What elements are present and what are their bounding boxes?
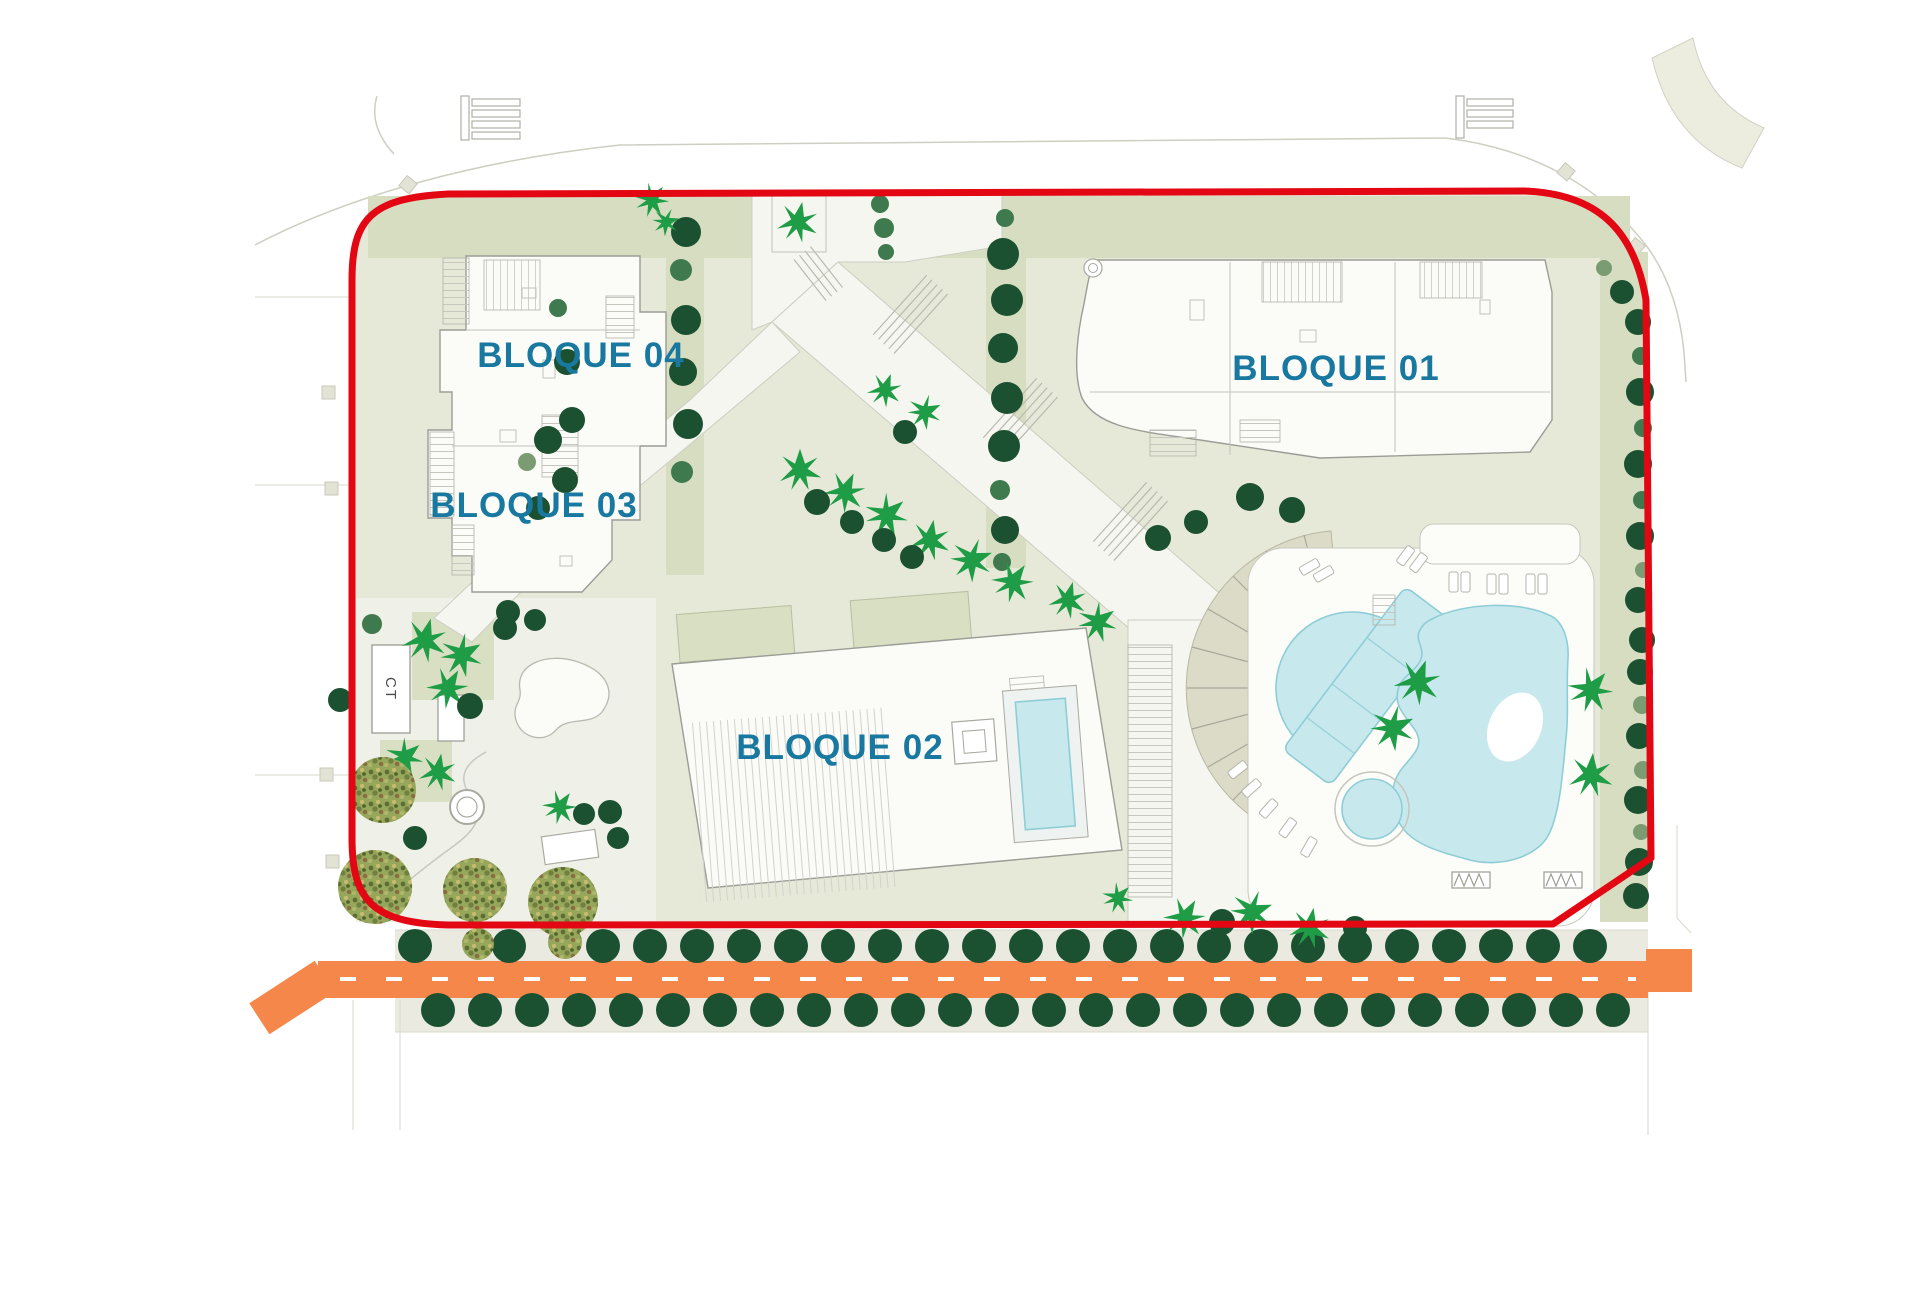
bloque-01-label: BLOQUE 01 [1232, 349, 1439, 389]
round-pool [1342, 779, 1402, 839]
pool-area [1227, 524, 1594, 926]
stair-band [1128, 645, 1172, 897]
site-plan-drawing: CT [0, 0, 1920, 1309]
site-plan-page: CT [0, 0, 1920, 1309]
bloque-03-label: BLOQUE 03 [430, 486, 637, 526]
rooftop-pool [1015, 698, 1075, 830]
ct-label: CT [382, 677, 399, 701]
fountain [450, 790, 484, 824]
crosswalks [461, 96, 1513, 140]
bloque-04-label: BLOQUE 04 [477, 336, 684, 376]
bloque-02-label: BLOQUE 02 [736, 728, 943, 768]
